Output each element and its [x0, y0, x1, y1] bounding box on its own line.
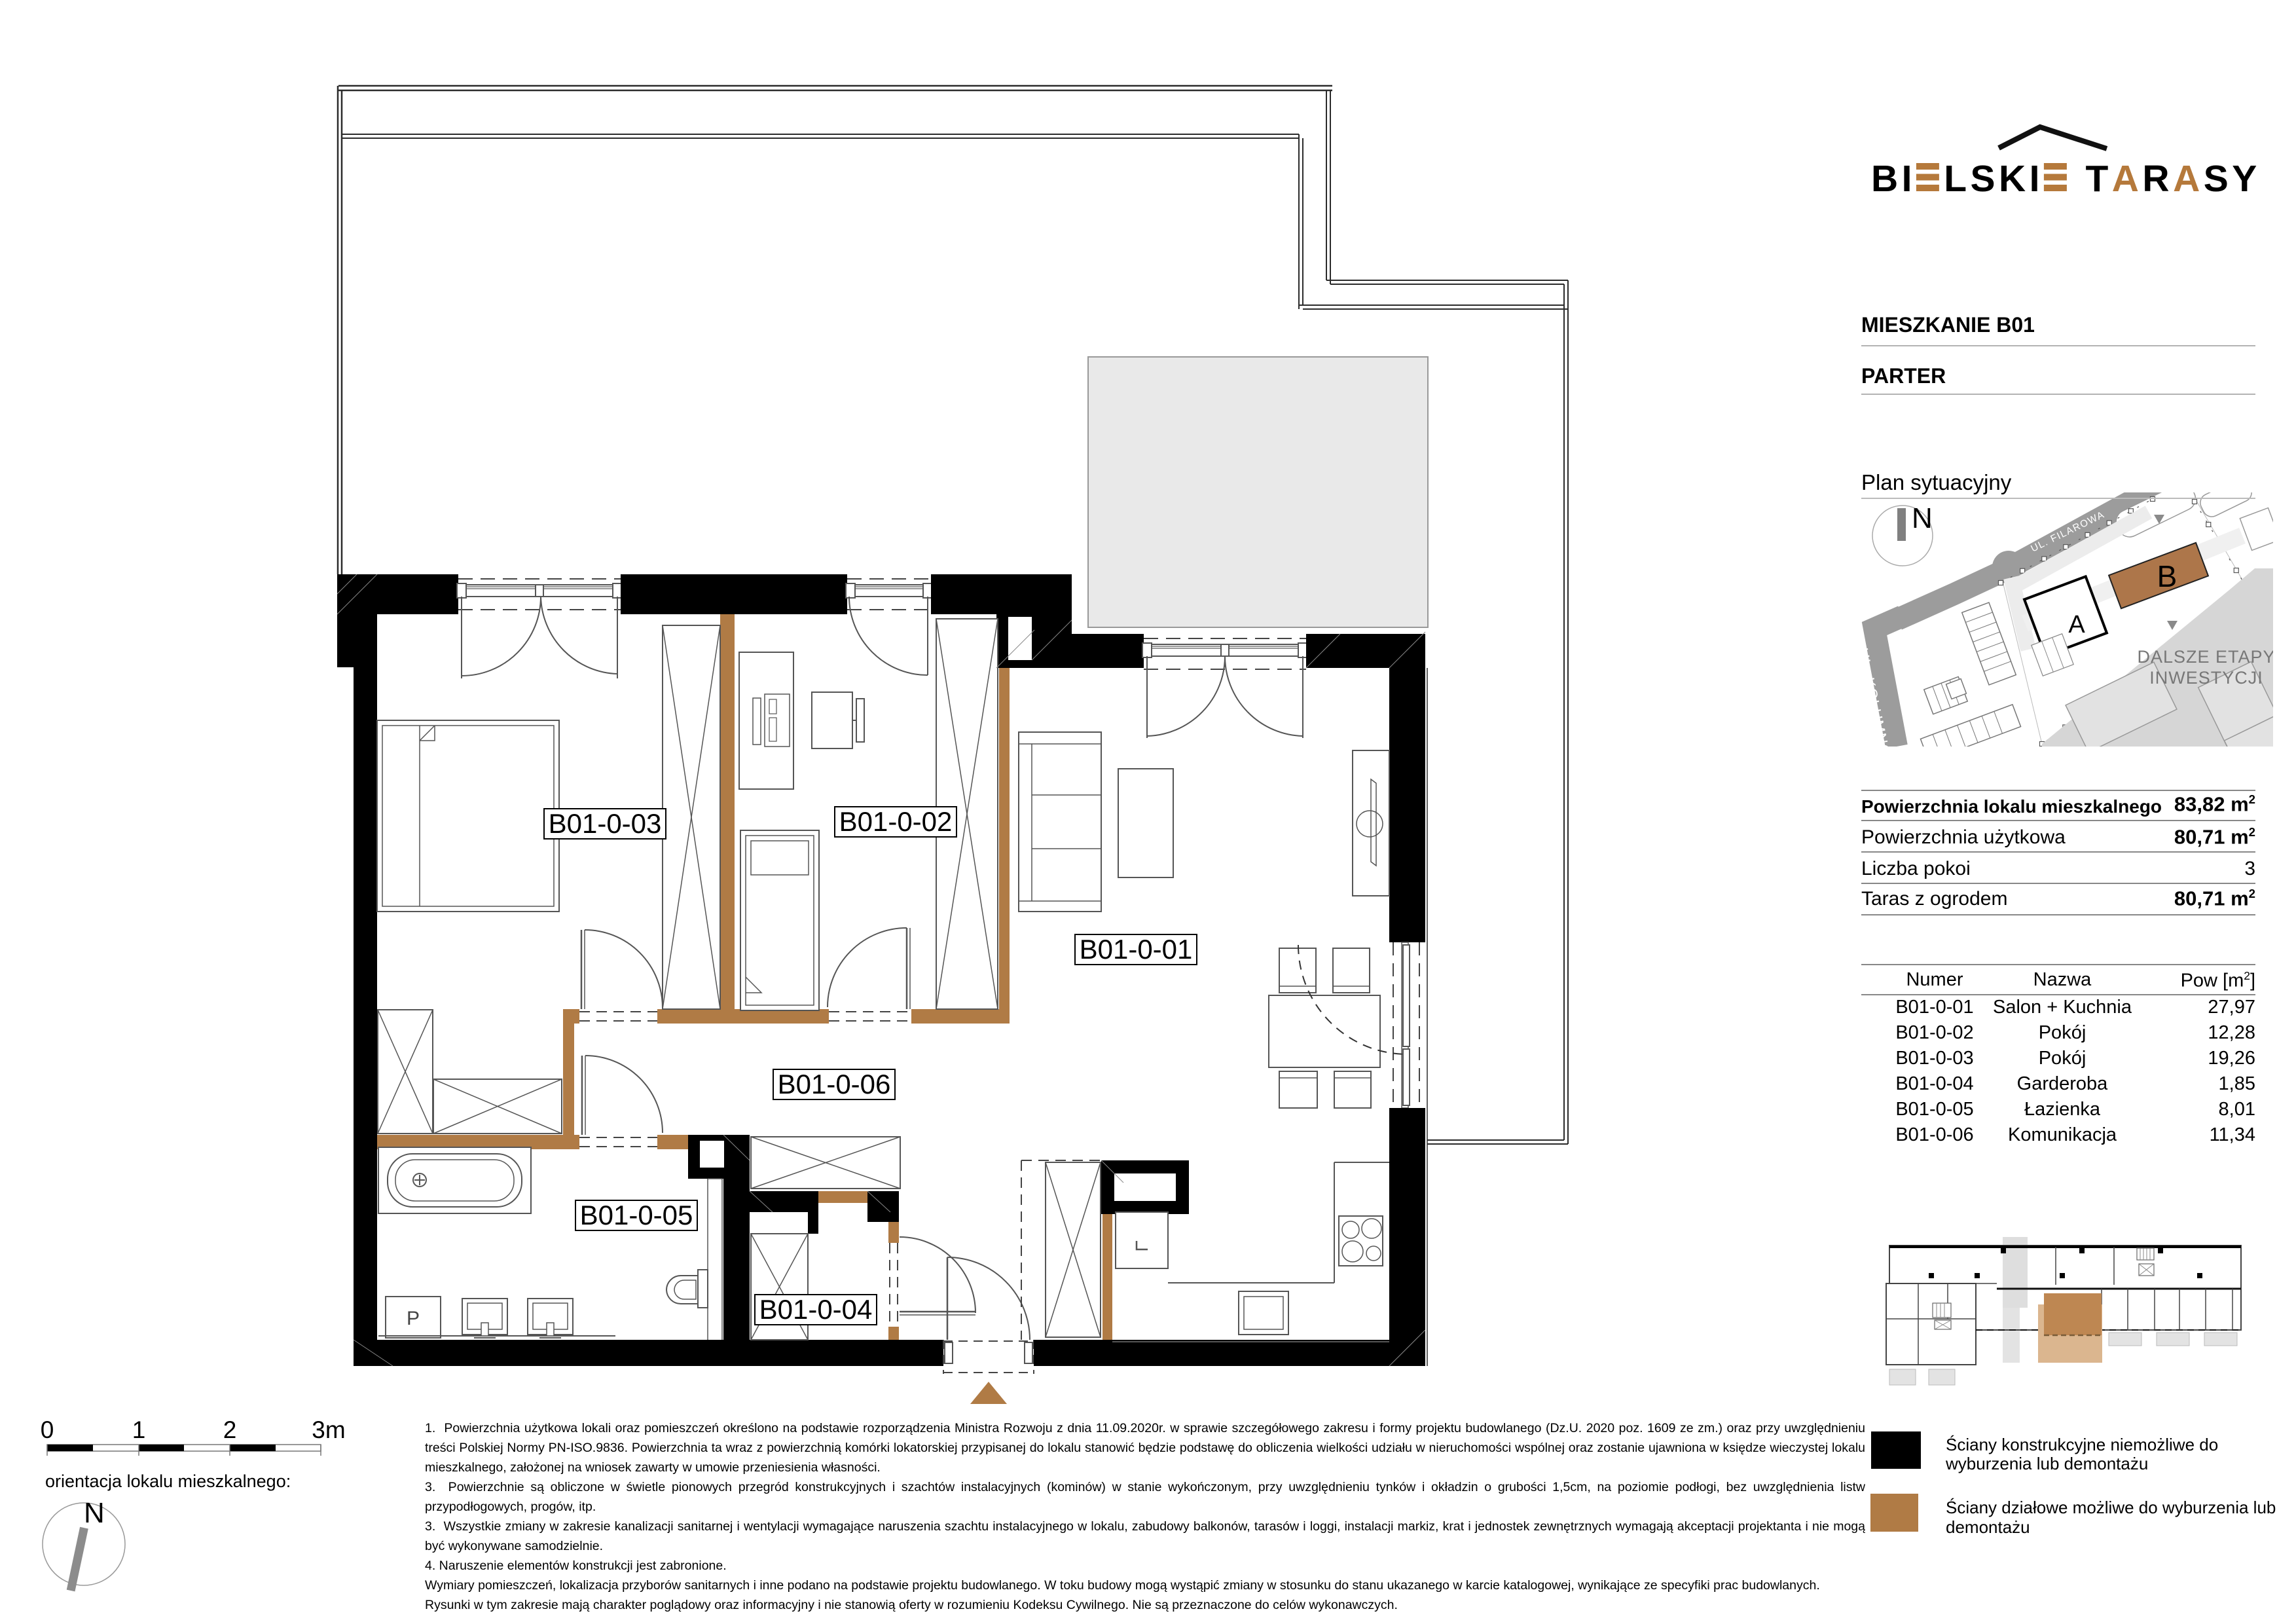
svg-text:2: 2	[223, 1416, 237, 1443]
svg-text:S: S	[1971, 158, 1995, 200]
svg-text:B01-0-05: B01-0-05	[580, 1200, 693, 1230]
svg-text:1: 1	[132, 1416, 146, 1443]
svg-text:N: N	[1912, 502, 1933, 534]
svg-text:3m: 3m	[312, 1416, 345, 1443]
svg-text:B: B	[2157, 559, 2178, 593]
svg-text:I: I	[2030, 158, 2040, 200]
svg-text:B01-0-03: B01-0-03	[549, 808, 662, 839]
svg-text:Y: Y	[2232, 158, 2257, 200]
svg-text:orientacja lokalu mieszkalnego: orientacja lokalu mieszkalnego:	[45, 1471, 291, 1491]
svg-text:INWESTYCJI: INWESTYCJI	[2149, 668, 2263, 688]
svg-text:B01-0-02: B01-0-02	[839, 806, 953, 837]
svg-text:A: A	[2068, 611, 2085, 638]
svg-text:B01-0-06: B01-0-06	[778, 1069, 891, 1099]
svg-text:N: N	[84, 1497, 105, 1529]
svg-text:A: A	[2173, 158, 2200, 200]
svg-text:P: P	[407, 1308, 420, 1329]
svg-text:K: K	[1999, 158, 2026, 200]
svg-text:L: L	[1944, 158, 1967, 200]
svg-text:T: T	[2086, 158, 2109, 200]
svg-text:0: 0	[41, 1416, 54, 1443]
svg-text:B01-0-04: B01-0-04	[759, 1294, 873, 1325]
svg-text:A: A	[2112, 158, 2139, 200]
svg-text:B01-0-01: B01-0-01	[1080, 934, 1193, 965]
svg-text:R: R	[2142, 158, 2169, 200]
svg-text:I: I	[1902, 158, 1912, 200]
svg-text:DALSZE ETAPY: DALSZE ETAPY	[2137, 647, 2275, 667]
svg-text:B: B	[1871, 158, 1898, 200]
svg-text:S: S	[2204, 158, 2229, 200]
